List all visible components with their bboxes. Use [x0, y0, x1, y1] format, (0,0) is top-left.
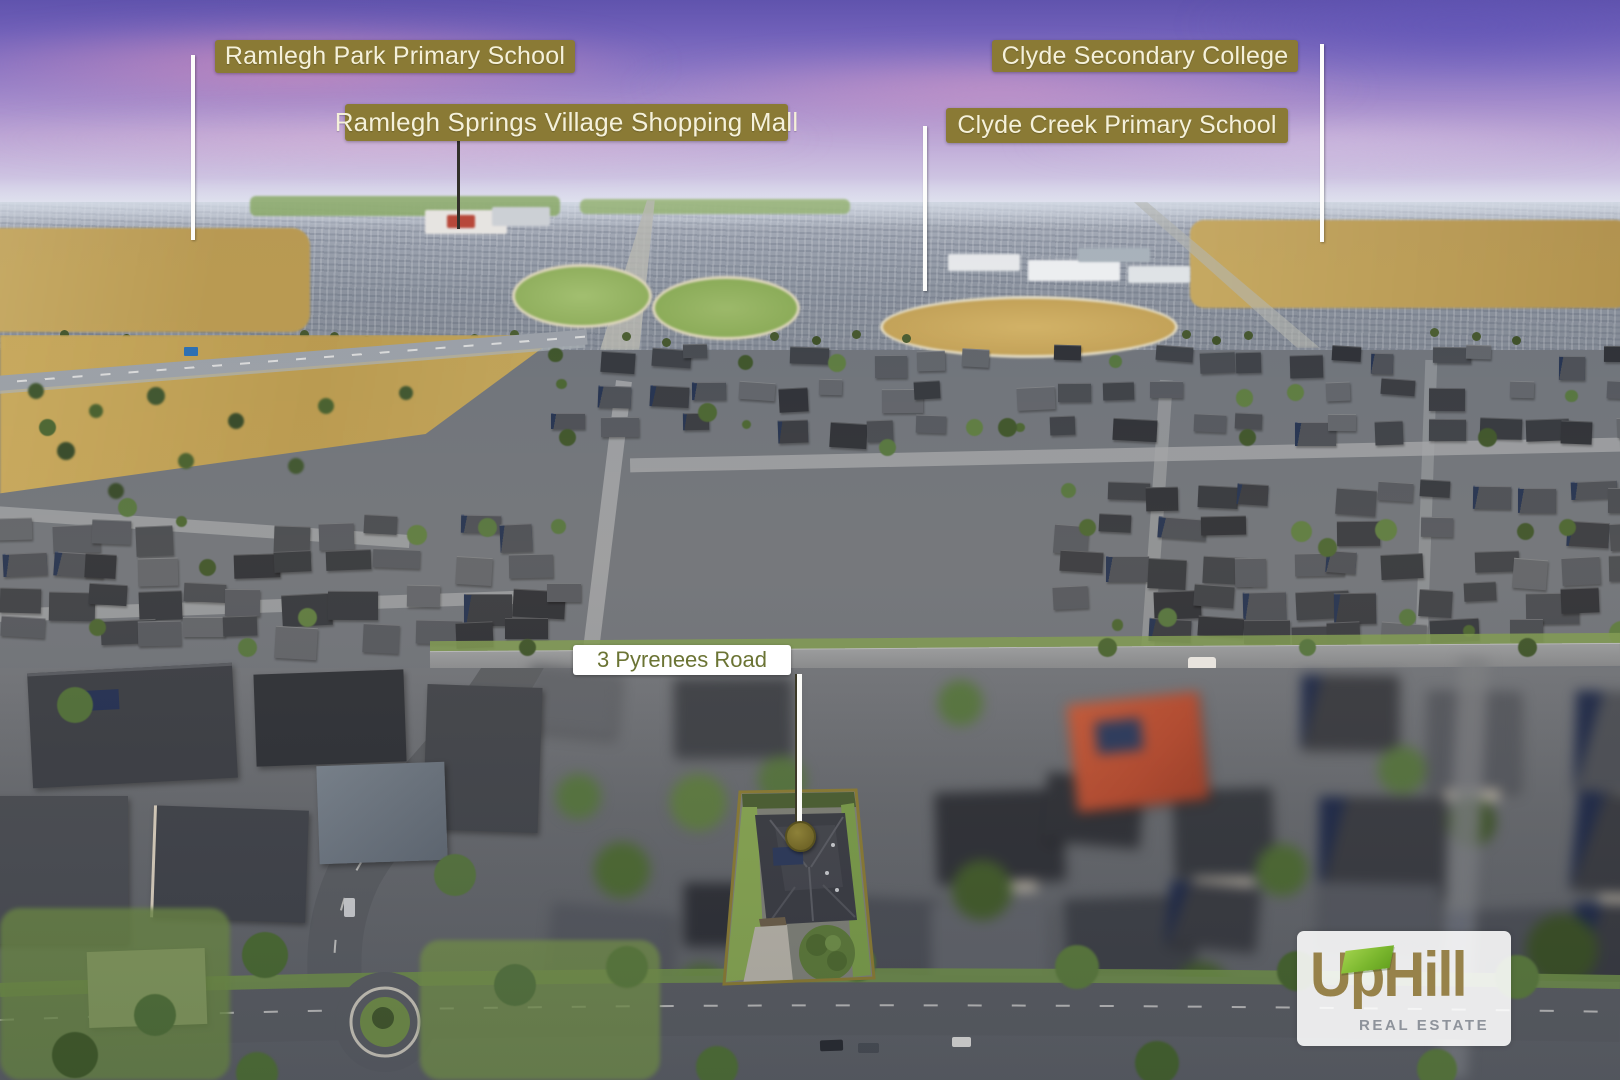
- house-roof: [1510, 381, 1535, 399]
- two-story-house: [316, 762, 447, 864]
- house-roof: [1377, 481, 1413, 502]
- label-clyde-creek-primary-school: Clyde Creek Primary School: [946, 108, 1288, 143]
- house-roof: [223, 616, 258, 637]
- house-roof: [1150, 381, 1183, 399]
- house-roof: [1420, 480, 1451, 499]
- car: [858, 1043, 879, 1053]
- house-roof: [692, 382, 727, 401]
- house-roof: [819, 379, 843, 395]
- house-roof: [739, 381, 776, 402]
- house-roof: [1332, 345, 1362, 362]
- tree: [1061, 483, 1076, 498]
- house-roof: [1201, 515, 1246, 535]
- house-roof: [551, 413, 585, 429]
- house-roof: [1112, 418, 1157, 442]
- house-roof: [1374, 421, 1403, 446]
- house-roof: [1464, 582, 1496, 603]
- house-roof: [150, 805, 309, 922]
- house-roof: [1429, 419, 1466, 441]
- house-roof: [1054, 345, 1082, 361]
- house-roof: [373, 548, 421, 569]
- pointer-line-ramlegh-springs: [457, 140, 460, 229]
- house-roof: [136, 525, 174, 556]
- house-roof: [1512, 557, 1548, 589]
- house-roof: [281, 592, 333, 626]
- tree: [176, 516, 188, 528]
- house-roof: [1337, 521, 1380, 547]
- house-roof: [1609, 522, 1620, 551]
- house-roof: [363, 514, 397, 534]
- house-roof: [1146, 487, 1179, 512]
- house-roof: [601, 351, 637, 374]
- house-roof: [913, 381, 940, 400]
- tree: [1565, 390, 1578, 403]
- aerial-property-photo: Ramlegh Park Primary School Ramlegh Spri…: [0, 0, 1620, 1080]
- house-roof: [137, 620, 181, 646]
- tree: [1287, 384, 1304, 401]
- house-roof: [1479, 417, 1522, 440]
- house-roof: [1604, 346, 1620, 362]
- label-clyde-secondary-college: Clyde Secondary College: [992, 40, 1298, 72]
- pointer-line-clyde-secondary: [1320, 44, 1324, 242]
- house-roof: [0, 615, 45, 638]
- house-roof: [830, 422, 868, 449]
- address-pointer-line: [795, 674, 802, 824]
- crisp-left-houses: [0, 668, 560, 1080]
- house-roof: [1325, 550, 1356, 574]
- house-roof: [778, 387, 809, 412]
- house-roof: [1607, 381, 1620, 400]
- house-roof: [509, 553, 554, 578]
- house-roof: [138, 590, 182, 620]
- house-roof: [1106, 555, 1149, 581]
- house-roof: [1335, 488, 1376, 516]
- house-roof: [1157, 516, 1207, 541]
- logo-tagline: REAL ESTATE: [1359, 1017, 1489, 1034]
- house-roof: [456, 556, 493, 586]
- tree: [556, 379, 566, 389]
- house-roof: [683, 413, 709, 430]
- house-roof: [1561, 556, 1600, 586]
- house-roof: [683, 344, 707, 359]
- midground-suburbs: [0, 345, 1620, 675]
- house-roof: [138, 557, 179, 586]
- house-roof: [1098, 514, 1131, 533]
- pointer-line-ramlegh-park: [191, 55, 195, 240]
- house-roof: [0, 518, 32, 541]
- house-roof: [1194, 583, 1235, 607]
- tree: [828, 354, 846, 372]
- house-roof: [1328, 414, 1356, 431]
- house-roof: [1420, 516, 1452, 537]
- house-roof: [253, 669, 406, 766]
- house-roof: [183, 617, 225, 637]
- property-tree: [799, 925, 855, 981]
- house-roof: [1381, 378, 1416, 396]
- house-roof: [1199, 352, 1235, 374]
- house-roof: [500, 523, 533, 552]
- address-pin: [785, 821, 816, 852]
- tree: [966, 419, 983, 436]
- tree: [548, 348, 563, 363]
- house-roof: [1560, 587, 1599, 614]
- tree: [551, 519, 566, 534]
- house-roof: [962, 349, 990, 369]
- tree: [742, 420, 751, 429]
- house-roof: [1371, 353, 1394, 375]
- house-roof: [273, 550, 311, 573]
- grass-verge: [420, 940, 660, 1080]
- house-roof: [916, 415, 946, 434]
- house-roof: [1608, 488, 1620, 513]
- house-roof: [1235, 558, 1267, 587]
- house-roof: [649, 385, 689, 408]
- house-roof: [88, 583, 127, 606]
- house-roof: [1472, 486, 1510, 509]
- tree: [1517, 523, 1535, 541]
- house-roof: [1148, 559, 1188, 591]
- house-roof: [1243, 591, 1287, 622]
- grass-verge: [0, 908, 230, 1080]
- logo-hill-text: Hill: [1383, 940, 1465, 1010]
- house-roof: [917, 351, 946, 372]
- pointer-line-clyde-creek: [923, 126, 927, 291]
- house-roof: [790, 347, 829, 365]
- house-roof: [546, 583, 580, 602]
- house-roof: [328, 591, 378, 620]
- house-roof: [1107, 481, 1149, 501]
- house-roof: [1381, 553, 1424, 580]
- house-roof: [866, 419, 893, 442]
- house-roof: [1566, 521, 1610, 549]
- car: [952, 1037, 971, 1047]
- house-roof: [407, 585, 440, 608]
- house-roof: [1559, 356, 1585, 380]
- label-address: 3 Pyrenees Road: [573, 645, 791, 675]
- house-roof: [1052, 585, 1088, 610]
- house-roof: [601, 417, 639, 437]
- tree: [738, 355, 753, 370]
- tree: [407, 525, 426, 544]
- tree: [1109, 355, 1122, 368]
- tree: [1112, 619, 1124, 631]
- house-roof: [598, 385, 632, 408]
- house-roof: [319, 522, 355, 550]
- house-roof: [1609, 555, 1620, 581]
- house-roof: [2, 552, 47, 577]
- street-trees: [0, 345, 15, 360]
- house-roof: [325, 549, 371, 571]
- house-roof: [1049, 416, 1075, 436]
- house-roof: [0, 587, 41, 613]
- house-roof: [1560, 420, 1592, 444]
- tree: [1015, 423, 1024, 432]
- house-roof: [1466, 344, 1492, 359]
- house-roof: [1236, 352, 1261, 373]
- tree: [1291, 521, 1312, 542]
- house-roof: [1058, 383, 1091, 402]
- house-roof: [1616, 416, 1620, 438]
- house-roof: [1193, 414, 1225, 433]
- house-roof: [1235, 412, 1263, 429]
- house-roof: [1155, 344, 1193, 362]
- house-roof: [777, 420, 807, 444]
- house-roof: [1518, 488, 1556, 513]
- label-ramlegh-park-primary-school: Ramlegh Park Primary School: [215, 40, 575, 73]
- house-roof: [84, 553, 116, 579]
- house-roof: [91, 519, 130, 544]
- house-roof: [1334, 592, 1377, 623]
- car: [820, 1040, 843, 1052]
- house-roof: [1198, 485, 1239, 509]
- label-ramlegh-springs-shopping-mall: Ramlegh Springs Village Shopping Mall: [345, 104, 788, 141]
- house-roof: [1429, 387, 1465, 410]
- tree: [1236, 389, 1254, 407]
- tree: [1375, 519, 1397, 541]
- house-roof: [875, 355, 907, 378]
- house-roof: [1236, 483, 1268, 506]
- house-roof: [1290, 354, 1324, 378]
- house-roof: [1419, 589, 1453, 618]
- house-roof: [1060, 550, 1105, 574]
- house-roof: [362, 623, 399, 654]
- house-roof: [184, 582, 227, 603]
- house-roof: [461, 514, 502, 533]
- bottom-road-trees: [0, 668, 34, 702]
- solar-panel: [84, 689, 119, 711]
- uphill-logo: UpHill REAL ESTATE: [1297, 931, 1511, 1046]
- house-roof: [505, 618, 547, 639]
- house-roof: [274, 626, 318, 660]
- house-roof: [27, 663, 238, 789]
- house-roof: [225, 589, 261, 616]
- house-roof: [1017, 387, 1056, 412]
- house-roof: [1102, 382, 1134, 401]
- house-roof: [1326, 382, 1351, 402]
